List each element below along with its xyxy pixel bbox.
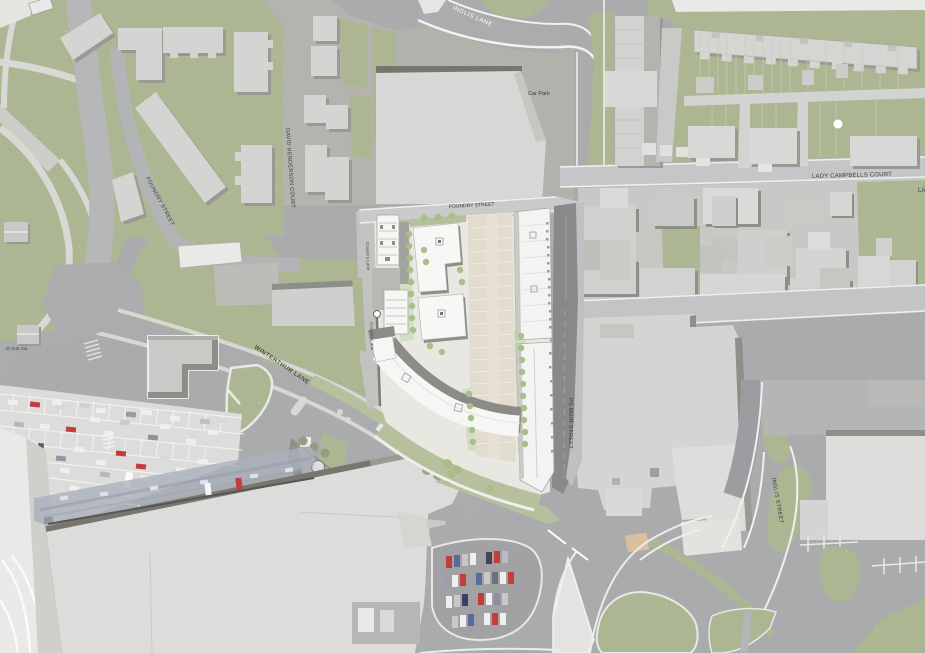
svg-text:Cousin's Lane: Cousin's Lane bbox=[365, 242, 371, 271]
svg-text:Car Park: Car Park bbox=[528, 91, 550, 97]
svg-text:El Sub Sta: El Sub Sta bbox=[6, 346, 28, 351]
svg-text:LAD: LAD bbox=[918, 188, 925, 194]
svg-text:Cousin's Lane: Cousin's Lane bbox=[369, 322, 375, 351]
svg-text:PILMUIR STREET: PILMUIR STREET bbox=[567, 398, 573, 449]
